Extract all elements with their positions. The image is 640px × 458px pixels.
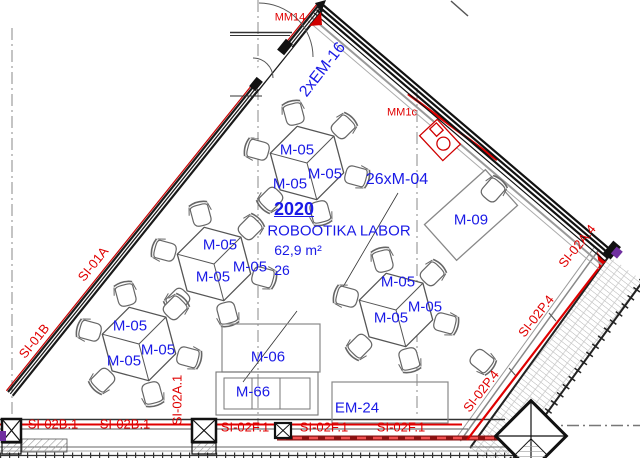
label-m05-t3c: M-05 bbox=[107, 354, 141, 369]
label-si02a1: SI-02A.1 bbox=[171, 375, 184, 426]
label-26xm04: 26xM-04 bbox=[366, 172, 428, 188]
label-si01a: SI-01A bbox=[75, 244, 110, 283]
label-m05-t4a: M-05 bbox=[381, 275, 415, 290]
room-number: 2020 bbox=[274, 200, 314, 218]
label-si02f1-a: SI-02F.1 bbox=[221, 421, 269, 434]
label-m05-t2c: M-05 bbox=[196, 270, 230, 285]
label-m05-t2b: M-05 bbox=[233, 260, 267, 275]
room-capacity: 26 bbox=[274, 263, 290, 277]
label-m05-t4c: M-05 bbox=[374, 311, 408, 326]
label-m06: M-06 bbox=[251, 350, 285, 365]
label-si02b1-b: SI-02B.1 bbox=[100, 418, 151, 431]
label-m05-t1a: M-05 bbox=[280, 143, 314, 158]
label-m05-t3b: M-05 bbox=[141, 343, 175, 358]
label-m05-t3a: M-05 bbox=[113, 319, 147, 334]
label-mm1c: MM1c bbox=[387, 108, 417, 119]
label-m05-t1c: M-05 bbox=[273, 177, 307, 192]
label-si01b: SI-01B bbox=[16, 321, 51, 360]
label-m05-t4b: M-05 bbox=[408, 300, 442, 315]
label-m09: M-09 bbox=[454, 213, 488, 228]
label-si02p4-lower: SI-02P.4 bbox=[461, 368, 501, 415]
room-name: ROBOOTIKA LABOR bbox=[267, 224, 410, 239]
label-m05-t2a: M-05 bbox=[203, 238, 237, 253]
label-em24: EM-24 bbox=[335, 401, 379, 416]
label-si02p4-upper: SI-02P.4 bbox=[516, 293, 556, 340]
label-2xem16: 2xEM-16 bbox=[297, 40, 349, 100]
label-m66: M-66 bbox=[236, 385, 270, 400]
room-area: 62,9 m² bbox=[274, 243, 321, 257]
annotation-layer: 2xEM-1626xM-042020ROBOOTIKA LABOR62,9 m²… bbox=[0, 0, 640, 458]
label-si02f1-b: SI-02F.1 bbox=[300, 421, 348, 434]
label-mm14: MM14 bbox=[275, 13, 306, 24]
floor-plan: 2xEM-1626xM-042020ROBOOTIKA LABOR62,9 m²… bbox=[0, 0, 640, 458]
label-si02a4: SI-02A.4 bbox=[556, 222, 598, 269]
label-si02f1-c: SI-02F.1 bbox=[377, 421, 425, 434]
label-si02b1-a: SI-02B.1 bbox=[28, 418, 79, 431]
label-m05-t1b: M-05 bbox=[308, 167, 342, 182]
